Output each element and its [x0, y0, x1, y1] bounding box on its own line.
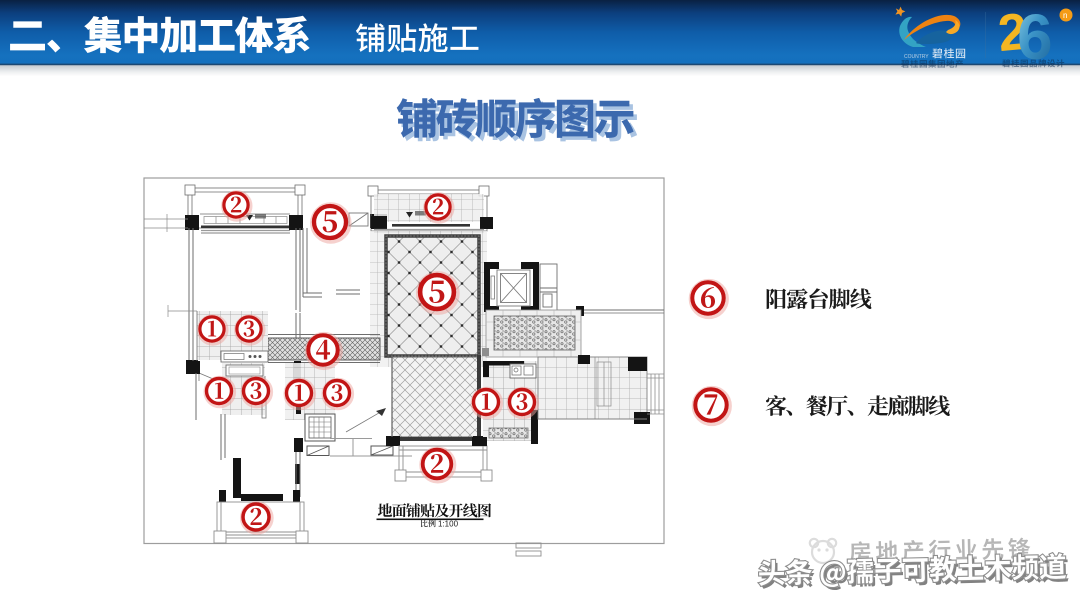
- svg-text:6: 6: [1017, 1, 1053, 73]
- svg-text:1:100: 1:100: [438, 520, 459, 529]
- svg-text:COUNTRY: COUNTRY: [904, 54, 929, 60]
- svg-text:n: n: [1063, 11, 1067, 20]
